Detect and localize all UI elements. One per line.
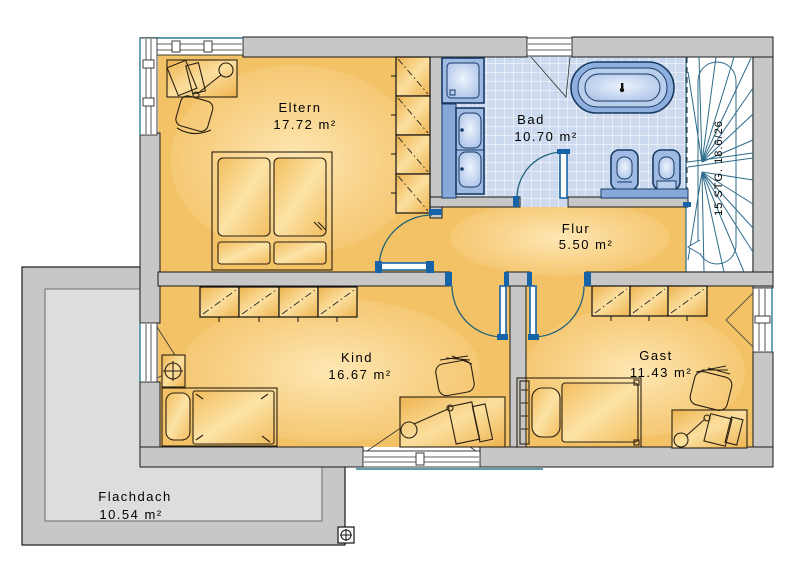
bathroom-ledge <box>601 189 688 198</box>
wall-top-left <box>243 37 527 57</box>
wardrobe-eltern <box>391 57 430 213</box>
single-bed-kind <box>162 388 277 446</box>
bathtub <box>571 62 674 113</box>
room-area-flur: 5.50 m² <box>559 237 614 252</box>
room-area-kind: 16.67 m² <box>328 367 391 382</box>
floor-plan: 15 STG. 18.6/26 <box>0 0 800 583</box>
wall-right-lower <box>753 352 773 447</box>
wall-kind-gast <box>510 286 526 447</box>
room-label-flur: Flur <box>562 221 590 236</box>
room-area-gast: 11.43 m² <box>630 365 692 380</box>
toilet <box>611 150 638 190</box>
room-label-flachdach: Flachdach <box>98 489 171 504</box>
bidet <box>653 150 680 190</box>
desk-gast <box>672 410 747 448</box>
room-label-bad: Bad <box>517 112 545 127</box>
wardrobe-gast <box>592 286 707 321</box>
wardrobe-kind <box>200 287 357 322</box>
wall-mid-post <box>506 272 530 286</box>
wall-left-lower <box>140 382 160 447</box>
floor-plan-canvas: 15 STG. 18.6/26 <box>0 0 800 583</box>
window-corner-vertical <box>140 38 157 135</box>
wall-bottom-left <box>140 447 363 467</box>
wall-bottom-right <box>480 447 773 467</box>
room-label-kind: Kind <box>341 350 373 365</box>
wall-mid-right <box>586 272 773 286</box>
wall-right-upper <box>753 57 773 288</box>
wall-top-right <box>572 37 773 57</box>
shower <box>442 58 484 103</box>
wall-left-upper <box>140 133 160 323</box>
wall-eltern-bad <box>430 57 442 218</box>
double-sink-vanity <box>442 104 484 198</box>
room-area-bad: 10.70 m² <box>514 129 577 144</box>
stair-entry-jamb <box>683 202 691 207</box>
room-area-eltern: 17.72 m² <box>273 117 336 132</box>
nightstand-plant <box>162 355 185 387</box>
wall-mid-left <box>158 272 450 286</box>
desk-eltern <box>167 60 237 98</box>
desk-kind <box>400 397 505 447</box>
room-label-eltern: Eltern <box>279 100 322 115</box>
stair-count-label: 15 STG. 18.6/26 <box>713 120 725 216</box>
room-label-gast: Gast <box>639 348 672 363</box>
roof-drain-icon <box>338 527 354 543</box>
room-area-flachdach: 10.54 m² <box>99 507 162 522</box>
